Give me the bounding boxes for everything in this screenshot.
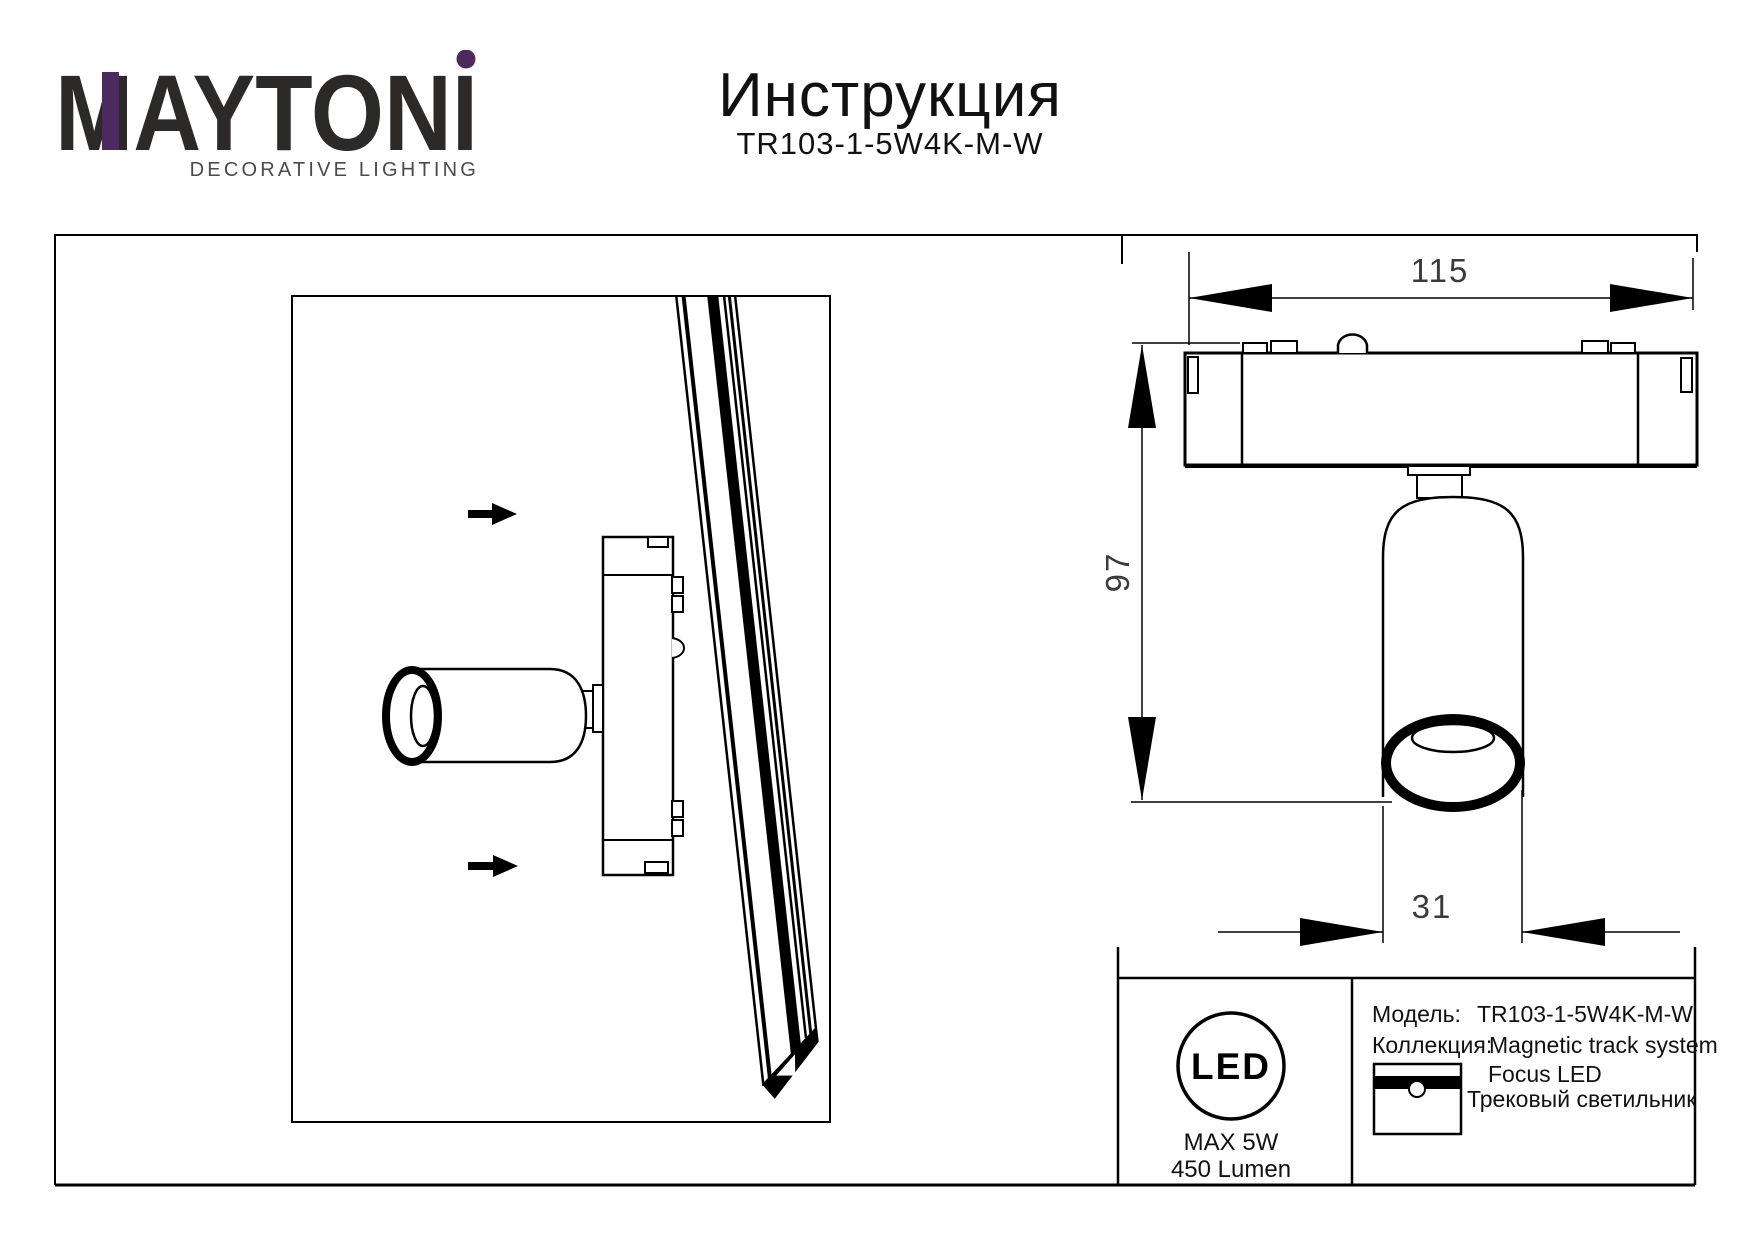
spec-collection-label: Коллекция: [1372,1032,1492,1059]
side-view-drawing [292,279,830,1122]
led-circle-icon: LED [1178,1013,1284,1119]
spec-product-name: Focus LED [1488,1061,1602,1088]
spec-product-type: Трековый светильник [1467,1086,1696,1113]
dim-label-lamp-diameter: 31 [1382,888,1482,926]
track-rail [674,279,825,1100]
dim-label-track-length: 115 [1390,252,1490,290]
track-adapter-front [1185,335,1697,467]
track-light-icon [1374,1064,1461,1134]
adapter-button-icon [1338,335,1367,354]
spec-model-value: TR103-1-5W4K-M-W [1477,1001,1693,1028]
instruction-sheet: MAYTONI DECORATIVE LIGHTING Инструкция T… [0,0,1754,1241]
spec-collection-value: Magnetic track system [1489,1032,1718,1059]
front-view-drawing [1128,252,1697,946]
spec-model-label: Модель: [1372,1001,1461,1028]
direction-arrow-top-icon [468,503,517,525]
track-adapter-side [603,537,684,875]
lens-front [1386,719,1520,807]
dim-label-fixture-height: 97 [1099,537,1137,607]
lamp-front [1383,466,1523,807]
direction-arrow-bottom-icon [468,855,518,877]
led-lettering: LED [1191,1046,1271,1087]
badge-max-power: MAX 5W [1141,1129,1321,1157]
lamp-side [386,669,603,762]
badge-luminous-flux: 450 Lumen [1141,1156,1321,1184]
